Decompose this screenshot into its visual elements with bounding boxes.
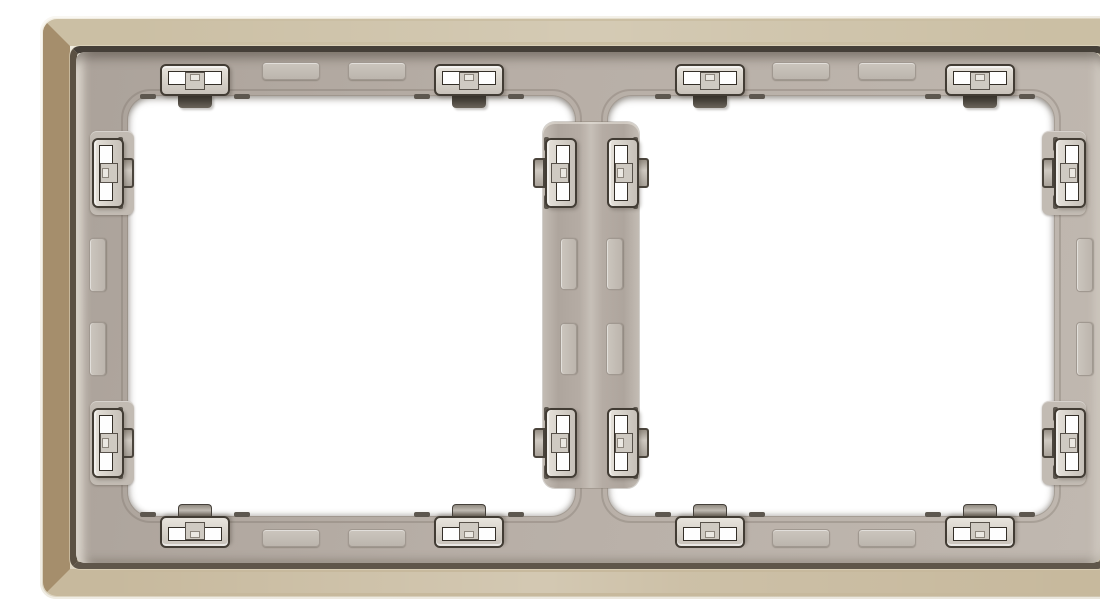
relief-bump bbox=[560, 238, 577, 290]
relief-bump bbox=[606, 323, 623, 375]
relief-bump bbox=[348, 62, 406, 80]
clip-body bbox=[160, 64, 230, 96]
clip-latch bbox=[178, 95, 212, 108]
mounting-clip bbox=[605, 131, 649, 215]
relief-bump bbox=[1076, 238, 1093, 292]
mounting-clip bbox=[90, 131, 134, 215]
mounting-clip bbox=[533, 401, 577, 485]
relief-bump bbox=[348, 529, 406, 547]
mounting-clip bbox=[160, 64, 230, 108]
relief-bump bbox=[89, 322, 106, 376]
relief-bump bbox=[1076, 322, 1093, 376]
relief-bump bbox=[772, 62, 830, 80]
relief-bump bbox=[89, 238, 106, 292]
mounting-clip bbox=[605, 401, 649, 485]
mounting-clip bbox=[675, 504, 745, 548]
product-photo bbox=[40, 16, 1100, 599]
window-opening-left bbox=[128, 96, 575, 516]
mounting-clip bbox=[434, 64, 504, 108]
relief-bump bbox=[858, 62, 916, 80]
relief-bump bbox=[262, 529, 320, 547]
relief-bump bbox=[560, 323, 577, 375]
mounting-clip bbox=[675, 64, 745, 108]
mounting-clip bbox=[90, 401, 134, 485]
mounting-clip bbox=[160, 504, 230, 548]
mounting-clip bbox=[945, 64, 1015, 108]
mounting-clip bbox=[533, 131, 577, 215]
mounting-clip bbox=[945, 504, 1015, 548]
relief-bump bbox=[262, 62, 320, 80]
relief-bump bbox=[858, 529, 916, 547]
mounting-clip bbox=[1042, 131, 1086, 215]
relief-bump bbox=[772, 529, 830, 547]
relief-bump bbox=[606, 238, 623, 290]
clip-tab bbox=[185, 72, 205, 90]
mounting-clip bbox=[434, 504, 504, 548]
mounting-clip bbox=[1042, 401, 1086, 485]
window-opening-right bbox=[608, 96, 1054, 516]
